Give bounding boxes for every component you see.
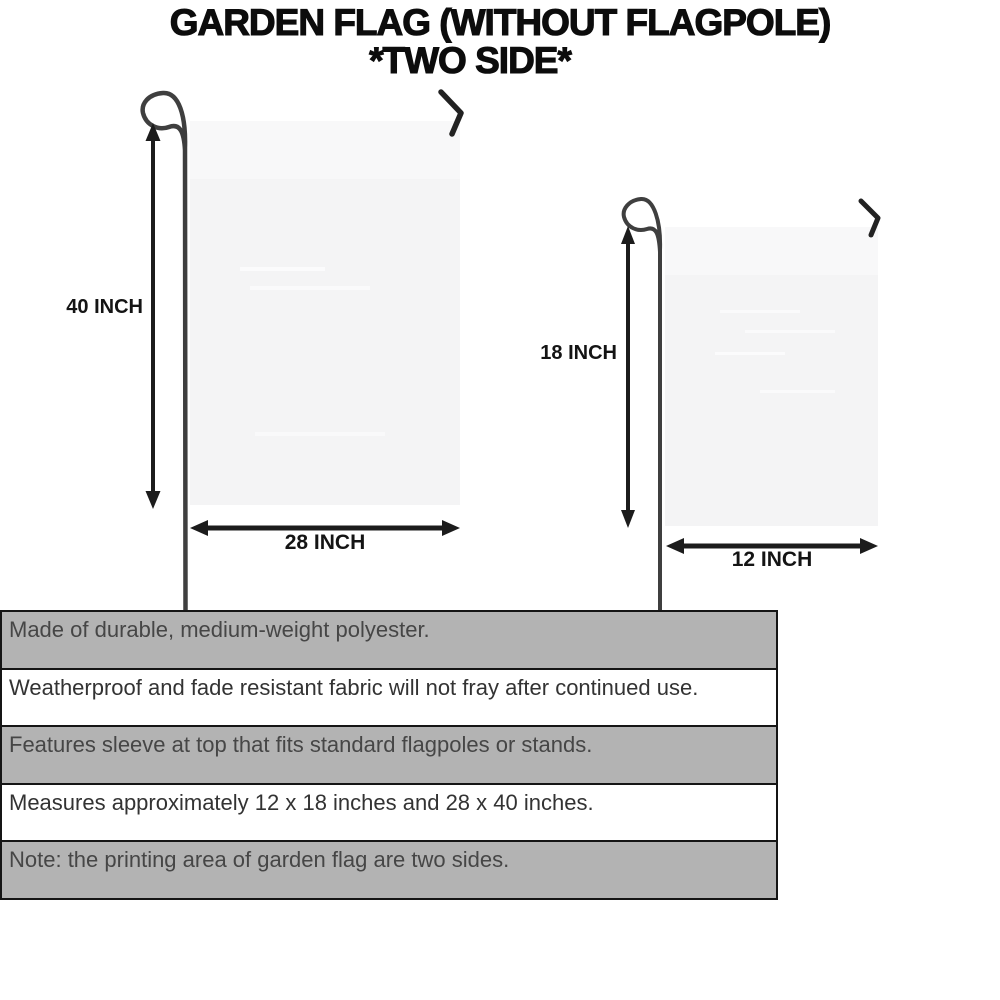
feature-text: Made of durable, medium-weight polyester… [9, 617, 430, 642]
fold-line [745, 330, 835, 333]
arrow-left-icon [190, 520, 208, 536]
fold-line [760, 390, 835, 393]
fold-line [255, 432, 385, 436]
feature-row: Features sleeve at top that fits standar… [2, 727, 776, 785]
feature-row: Made of durable, medium-weight polyester… [2, 612, 776, 670]
fold-line [720, 310, 800, 313]
large-flag-width-label: 28 INCH [230, 531, 420, 555]
large-flagpole-icon [143, 93, 186, 610]
feature-text: Features sleeve at top that fits standar… [9, 732, 592, 757]
features-table: Made of durable, medium-weight polyester… [0, 610, 778, 900]
arrow-down-icon [146, 491, 161, 509]
fold-line [715, 352, 785, 355]
small-flag-height-label: 18 INCH [520, 342, 617, 365]
feature-row: Weatherproof and fade resistant fabric w… [2, 670, 776, 728]
large-flag-sleeve [190, 121, 460, 179]
feature-text: Measures approximately 12 x 18 inches an… [9, 790, 594, 815]
feature-row: Measures approximately 12 x 18 inches an… [2, 785, 776, 843]
garden-flag-infographic: GARDEN FLAG (WITHOUT FLAGPOLE) *TWO SIDE… [0, 0, 1000, 1000]
feature-text: Weatherproof and fade resistant fabric w… [9, 675, 698, 700]
large-flag-height-label: 40 INCH [46, 296, 143, 319]
fold-line [240, 267, 325, 271]
small-flag-width-label: 12 INCH [677, 548, 867, 572]
fold-line [250, 286, 370, 290]
feature-row: Note: the printing area of garden flag a… [2, 842, 776, 898]
feature-text: Note: the printing area of garden flag a… [9, 847, 509, 872]
arrow-down-icon [621, 510, 635, 528]
small-flag-sleeve [665, 227, 878, 275]
arrow-right-icon [442, 520, 460, 536]
